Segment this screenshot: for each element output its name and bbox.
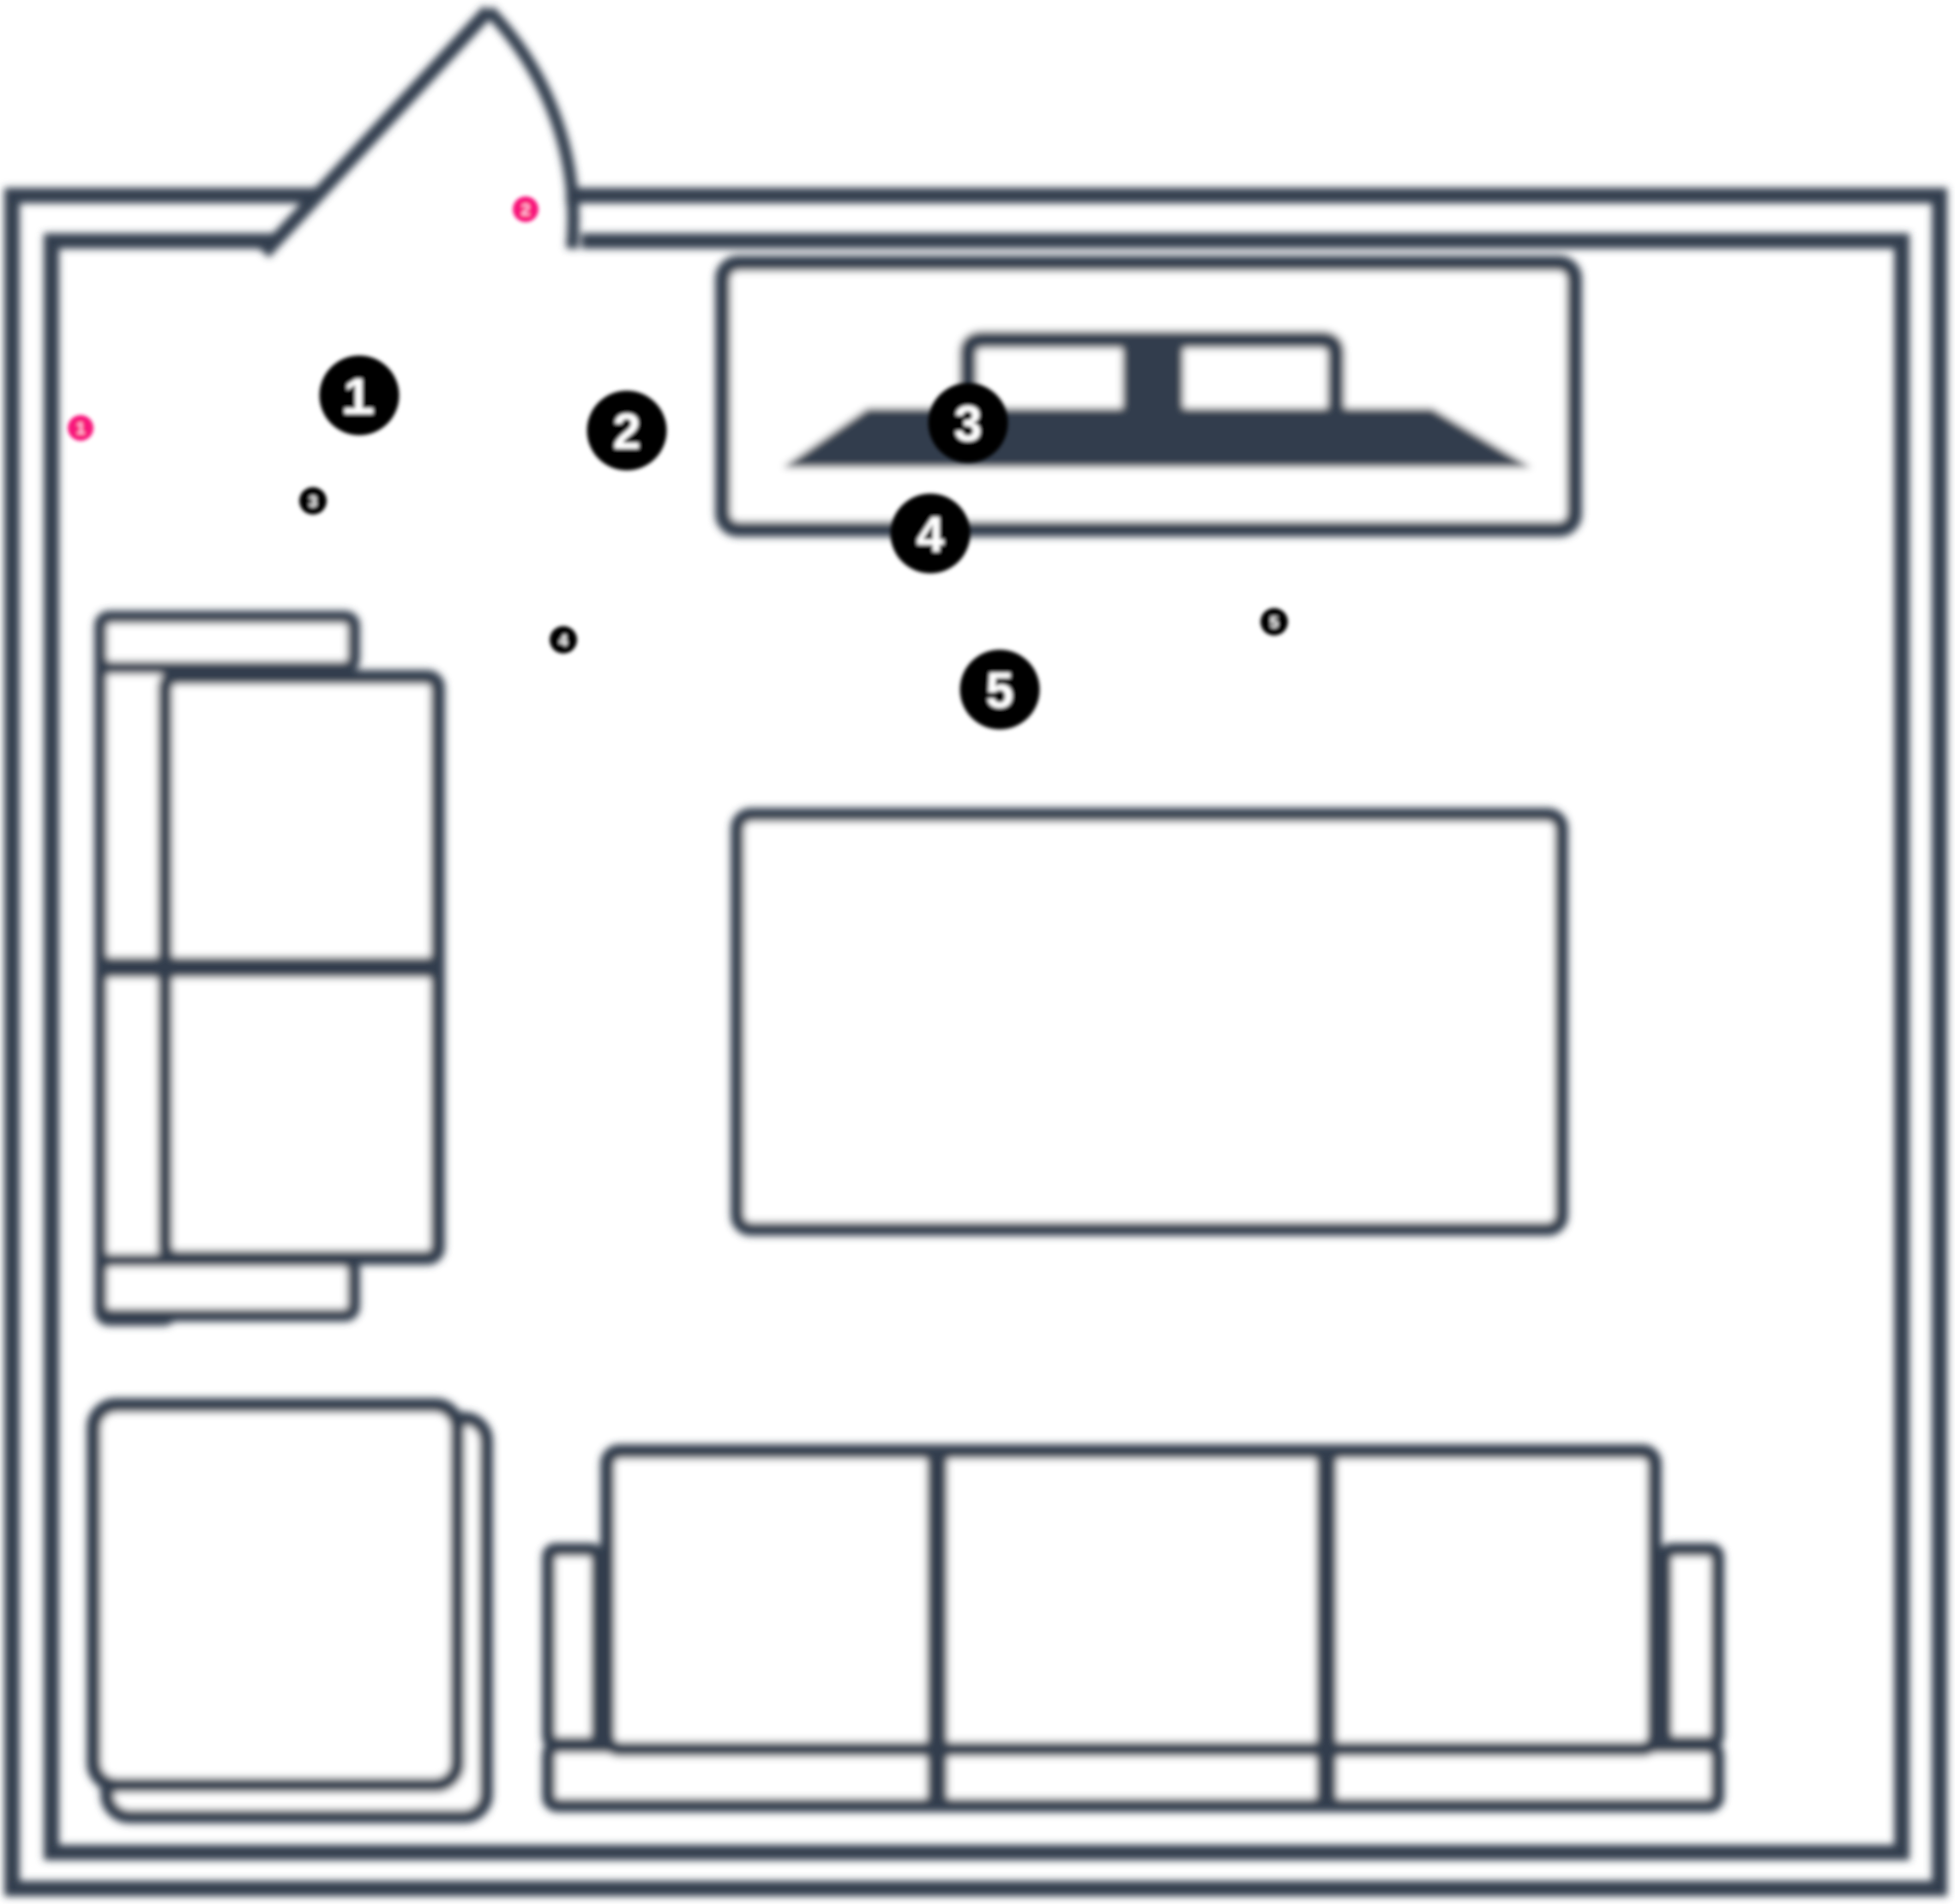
svg-text:1: 1	[344, 369, 371, 425]
svg-text:3: 3	[309, 493, 317, 510]
svg-text:4: 4	[559, 632, 568, 649]
svg-text:5: 5	[1270, 614, 1278, 631]
svg-text:2: 2	[613, 404, 641, 460]
svg-text:5: 5	[986, 663, 1014, 719]
svg-text:2: 2	[521, 202, 531, 220]
svg-text:1: 1	[76, 420, 86, 438]
svg-text:4: 4	[917, 507, 944, 563]
svg-text:3: 3	[954, 396, 982, 452]
